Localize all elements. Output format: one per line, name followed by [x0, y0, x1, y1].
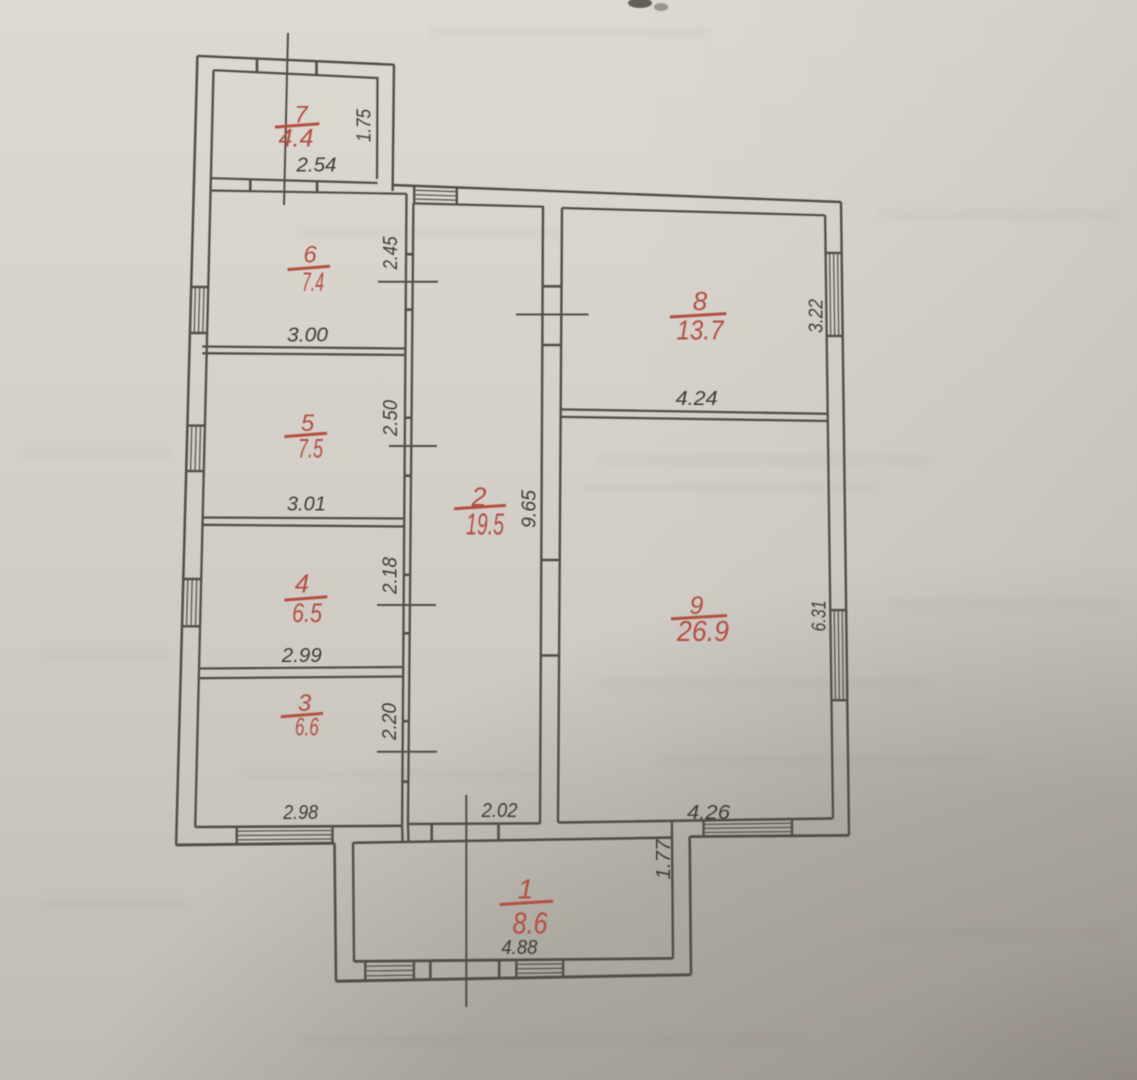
- svg-text:6: 6: [303, 241, 317, 268]
- svg-text:2.98: 2.98: [282, 802, 318, 824]
- svg-text:1: 1: [518, 874, 534, 905]
- svg-text:3.01: 3.01: [287, 494, 326, 516]
- svg-text:4.26: 4.26: [687, 802, 731, 824]
- svg-text:6.31: 6.31: [809, 601, 831, 632]
- svg-text:2.20: 2.20: [379, 703, 401, 741]
- svg-text:2.45: 2.45: [380, 236, 402, 271]
- svg-text:1.77: 1.77: [653, 839, 675, 880]
- svg-text:3.22: 3.22: [806, 299, 828, 333]
- svg-text:3.00: 3.00: [287, 325, 328, 347]
- svg-text:4.24: 4.24: [676, 388, 718, 410]
- svg-text:2.99: 2.99: [281, 645, 322, 667]
- svg-text:1.75: 1.75: [353, 108, 375, 142]
- svg-text:26.9: 26.9: [676, 616, 729, 648]
- svg-text:4.4: 4.4: [279, 125, 314, 153]
- svg-text:2.54: 2.54: [295, 155, 336, 177]
- svg-text:6.5: 6.5: [292, 598, 323, 628]
- svg-text:13.7: 13.7: [677, 315, 725, 346]
- svg-text:7.4: 7.4: [302, 267, 324, 297]
- svg-text:2.18: 2.18: [380, 557, 402, 595]
- svg-text:8.6: 8.6: [513, 906, 549, 941]
- svg-text:4.88: 4.88: [501, 937, 537, 959]
- svg-text:9.65: 9.65: [519, 489, 541, 528]
- svg-text:2.50: 2.50: [380, 400, 402, 437]
- svg-text:7.5: 7.5: [298, 434, 324, 464]
- svg-text:2.02: 2.02: [481, 800, 518, 822]
- svg-text:8: 8: [693, 286, 708, 316]
- svg-text:6.6: 6.6: [295, 714, 319, 742]
- svg-text:19.5: 19.5: [466, 507, 504, 542]
- svg-text:4: 4: [295, 569, 309, 599]
